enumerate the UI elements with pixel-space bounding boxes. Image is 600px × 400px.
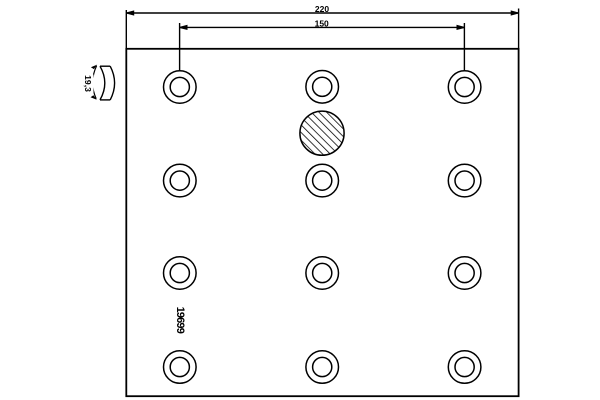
svg-text:150: 150 [315,19,329,29]
svg-text:19,3: 19,3 [83,75,93,92]
svg-text:19699: 19699 [174,307,186,334]
svg-text:220: 220 [315,4,329,14]
